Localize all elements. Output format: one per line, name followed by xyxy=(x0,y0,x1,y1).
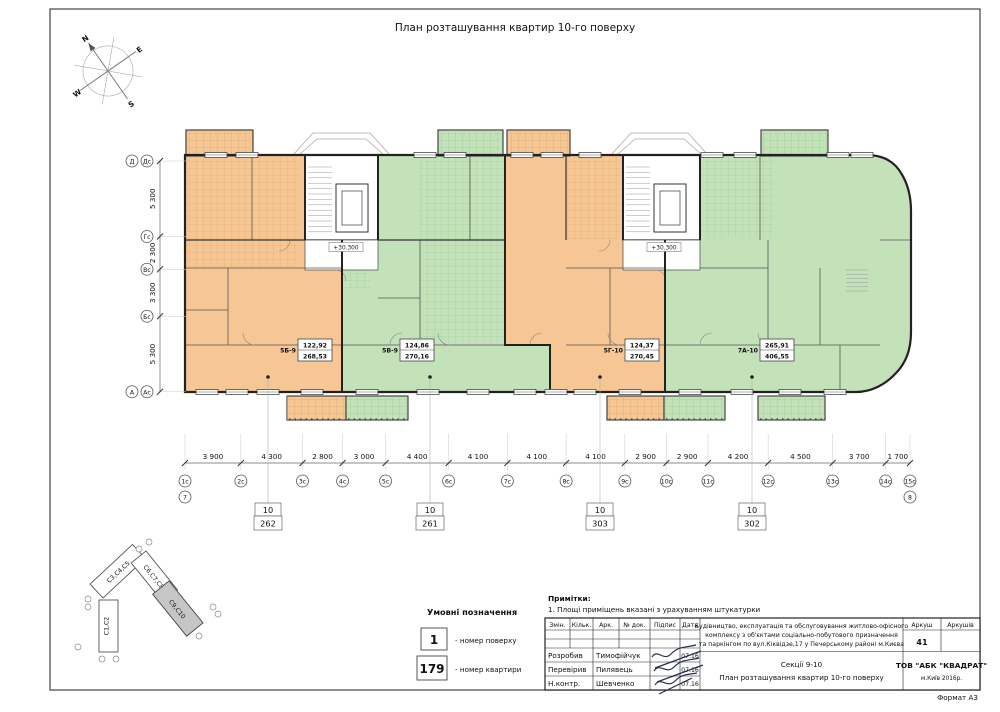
balcony xyxy=(761,130,828,156)
tb-name: Пилявець xyxy=(596,665,633,674)
dimension-value: 4 400 xyxy=(407,452,428,461)
dimension-value: 5 300 xyxy=(148,343,157,364)
dimension-value: 2 300 xyxy=(148,242,157,263)
legend-label: - номер квартири xyxy=(455,665,522,674)
site-key-node xyxy=(99,656,105,662)
dimension-value: 5 300 xyxy=(148,188,157,209)
callout-floor: 10 xyxy=(747,505,757,515)
balcony xyxy=(607,396,664,420)
balcony xyxy=(507,130,570,156)
site-key-node xyxy=(113,656,119,662)
elevator-car xyxy=(342,191,362,225)
elevator-car xyxy=(660,191,680,225)
tb-name: Шевченко xyxy=(596,679,634,688)
axis-label: 11с xyxy=(702,479,714,486)
axis-label: 10с xyxy=(661,479,673,486)
tb-role: Перевірив xyxy=(548,665,587,674)
axis-label: 12с xyxy=(763,479,775,486)
tb-sheet-label: Аркуш xyxy=(911,622,933,629)
site-key-node xyxy=(75,644,81,650)
area-total: 270,45 xyxy=(630,354,654,361)
drawing-sheet: План розташування квартир 10-го поверху … xyxy=(0,0,1000,707)
site-key-section: С3,С4,С5 xyxy=(90,545,145,598)
callout-number: 262 xyxy=(260,519,276,529)
axis-label: Гс xyxy=(143,234,151,241)
apartment-id: 5Б-9 xyxy=(280,348,296,355)
leader-dot xyxy=(266,375,270,379)
balcony xyxy=(287,396,346,420)
tb-header: Підпис xyxy=(654,621,677,629)
compass-label-n: N xyxy=(80,33,90,44)
tb-role: Н.контр. xyxy=(548,679,580,688)
page-title: План розташування квартир 10-го поверху xyxy=(395,22,635,34)
apartment-id: 7А-10 xyxy=(738,348,759,355)
title-block: Змін. Кільк. Арк. № док. Підпис Дата Роз… xyxy=(545,618,987,694)
tb-company: ТОВ "АБК "КВАДРАТ" xyxy=(896,661,987,670)
axis-label: 15с xyxy=(904,479,916,486)
axis-label: 5с xyxy=(382,479,390,486)
legend-label: - номер поверху xyxy=(455,636,517,645)
compass-label-w: W xyxy=(71,87,83,99)
tb-section-title: Секції 9-10 xyxy=(781,660,823,669)
legend-title: Умовні позначення xyxy=(427,607,517,617)
area-living: 124,37 xyxy=(630,343,654,350)
compass-rose: N E S W xyxy=(48,12,167,132)
legend-symbol: 1 xyxy=(430,633,438,647)
axis-label: 13с xyxy=(827,479,839,486)
loggia-hatch xyxy=(701,157,773,237)
site-key-node xyxy=(85,596,91,602)
site-key-node xyxy=(215,611,221,617)
dimension-value: 4 500 xyxy=(790,452,811,461)
site-key: С1,С2 С3,С4,С5 С6,С7,С8 С9,С10 xyxy=(75,539,221,662)
leader-dot xyxy=(428,375,432,379)
axis-label: 3с xyxy=(299,479,307,486)
axis-label: Бс xyxy=(143,314,151,321)
dimension-value: 4 100 xyxy=(585,452,606,461)
dimension-value: 4 300 xyxy=(261,452,282,461)
notes-title: Примітки: xyxy=(548,594,591,603)
format-label: Формат А3 xyxy=(937,693,978,702)
callout-floor: 10 xyxy=(595,505,605,515)
balcony xyxy=(186,130,253,156)
dimension-value: 3 700 xyxy=(849,452,870,461)
tb-sheet-title: План розташування квартир 10-го поверху xyxy=(719,673,884,682)
site-key-node xyxy=(136,546,142,552)
tb-sheets-label: Аркушів xyxy=(947,621,974,629)
leader-dot xyxy=(750,375,754,379)
axis-label: Дс xyxy=(143,159,152,166)
loggia-hatch xyxy=(567,157,622,239)
compass-label-e: E xyxy=(135,44,144,54)
callout-number: 261 xyxy=(422,519,438,529)
tb-project-line: та паркінгом по вул.Кіквідзе,17 у Печерс… xyxy=(699,640,904,648)
axis-label: Вс xyxy=(143,267,151,274)
tb-header: Змін. xyxy=(549,621,565,629)
axis-label: 7с xyxy=(504,479,512,486)
compass-label-s: S xyxy=(126,99,136,109)
legend: Умовні позначення 1 - номер поверху 179 … xyxy=(417,607,522,680)
elevation-value: +30.300 xyxy=(333,246,358,252)
compass-diagonals xyxy=(75,38,142,105)
tb-project-line: комплексу з об'єктами соціально-побутово… xyxy=(705,631,898,639)
legend-symbol: 179 xyxy=(419,662,444,676)
dimension-value: 3 900 xyxy=(203,452,224,461)
site-key-node xyxy=(210,604,216,610)
tb-sheet-number: 41 xyxy=(916,637,928,647)
callout-floor: 10 xyxy=(263,505,273,515)
entrance-bay xyxy=(293,133,390,155)
axis-label: Д xyxy=(130,159,135,166)
axis-label: 7 xyxy=(183,495,187,502)
elevation-value: +30.300 xyxy=(651,246,676,252)
tb-name: Тимофійчук xyxy=(595,651,641,660)
dimension-value: 2 900 xyxy=(635,452,656,461)
dimension-value: 3 000 xyxy=(354,452,375,461)
dimension-value: 4 100 xyxy=(468,452,489,461)
elevation-mark: +30.300 xyxy=(647,243,681,252)
axis-label: 14с xyxy=(880,479,892,486)
leader-dot xyxy=(598,375,602,379)
architectural-drawing: План розташування квартир 10-го поверху … xyxy=(0,0,1000,707)
area-living: 124,86 xyxy=(405,343,429,350)
site-key-node xyxy=(146,539,152,545)
site-key-section-highlighted: С9,С10 xyxy=(153,581,203,636)
axis-label: 6с xyxy=(445,479,453,486)
balcony xyxy=(438,130,503,156)
callout-floor: 10 xyxy=(425,505,435,515)
axis-label: 1с xyxy=(181,479,189,486)
axis-label: 9с xyxy=(621,479,629,486)
apartment-id: 5Г-10 xyxy=(604,348,624,355)
area-total: 268,53 xyxy=(303,354,327,361)
tb-header: № док. xyxy=(622,622,645,629)
area-living: 122,92 xyxy=(303,343,327,350)
entrance-bay xyxy=(611,133,708,155)
site-key-node xyxy=(85,604,91,610)
dimension-value: 2 800 xyxy=(312,452,333,461)
dimension-value: 4 200 xyxy=(728,452,749,461)
axis-label: 2с xyxy=(237,479,245,486)
balcony xyxy=(346,396,408,420)
tb-company-city: м.Київ 2016р. xyxy=(921,676,962,682)
balcony xyxy=(758,396,825,420)
axis-label: 8 xyxy=(908,495,912,502)
area-total: 406,55 xyxy=(765,354,789,361)
area-living: 265,91 xyxy=(765,343,789,350)
apartment-id: 5В-9 xyxy=(382,348,398,355)
tb-role: Розробив xyxy=(548,651,583,660)
site-key-node xyxy=(196,633,202,639)
tb-project-line: Будівництво, експлуатація та обслуговува… xyxy=(695,622,909,630)
axis-label: 4с xyxy=(339,479,347,486)
tb-header: Арк. xyxy=(599,622,613,629)
tb-header: Кільк. xyxy=(572,621,591,629)
callout-number: 302 xyxy=(744,519,760,529)
loggia-hatch xyxy=(420,157,505,343)
dimension-value: 2 900 xyxy=(677,452,698,461)
callout-number: 303 xyxy=(592,519,608,529)
dimension-value: 1 700 xyxy=(888,452,909,461)
area-total: 270,16 xyxy=(405,354,429,361)
axis-label: 8с xyxy=(562,479,570,486)
dimension-value: 4 100 xyxy=(526,452,547,461)
floor-plan: +30.300 +30.300 xyxy=(185,130,911,420)
elevation-mark: +30.300 xyxy=(329,243,363,252)
balcony xyxy=(664,396,725,420)
notes: Примітки: 1. Площі приміщень вказані з у… xyxy=(548,594,761,614)
site-key-label: С1,С2 xyxy=(104,617,111,636)
dimension-value: 3 300 xyxy=(148,282,157,303)
notes-line: 1. Площі приміщень вказані з урахуванням… xyxy=(548,605,761,614)
axis-label: Ас xyxy=(143,389,151,396)
